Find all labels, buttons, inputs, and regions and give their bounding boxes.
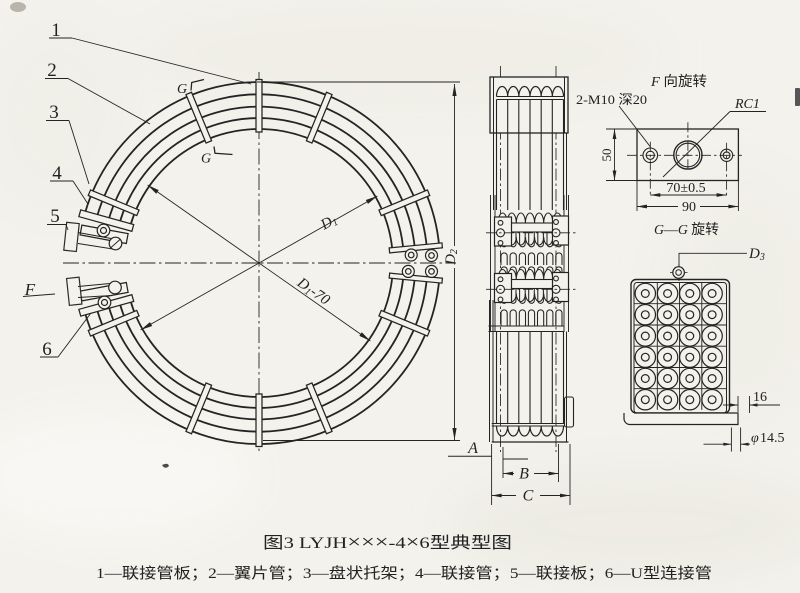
svg-text:16: 16	[753, 390, 767, 405]
svg-text:3: 3	[49, 102, 59, 123]
svg-text:90: 90	[682, 200, 696, 215]
svg-text:A: A	[467, 440, 478, 457]
svg-text:G: G	[201, 152, 211, 167]
svg-text:50: 50	[599, 149, 614, 162]
svg-text:1—联接管板；2—翼片管；3—盘状托架；4—联接管；5—联接: 1—联接管板；2—翼片管；3—盘状托架；4—联接管；5—联接板；6—U型连接管	[96, 564, 712, 582]
svg-text:图3 LYJH×××-4×6型典型图: 图3 LYJH×××-4×6型典型图	[263, 532, 512, 553]
svg-text:70±0.5: 70±0.5	[666, 181, 705, 196]
svg-text:F 向旋转: F 向旋转	[650, 74, 707, 90]
svg-text:14.5: 14.5	[760, 431, 785, 446]
svg-text:2: 2	[47, 60, 57, 81]
svg-text:2-M10 深20: 2-M10 深20	[576, 92, 647, 107]
svg-text:5: 5	[50, 206, 60, 227]
svg-text:φ: φ	[751, 431, 759, 446]
svg-text:G—G 旋转: G—G 旋转	[654, 222, 719, 238]
svg-text:C: C	[523, 488, 534, 505]
svg-text:B: B	[519, 466, 529, 483]
svg-text:RC1: RC1	[734, 97, 760, 112]
svg-text:G: G	[177, 82, 187, 97]
